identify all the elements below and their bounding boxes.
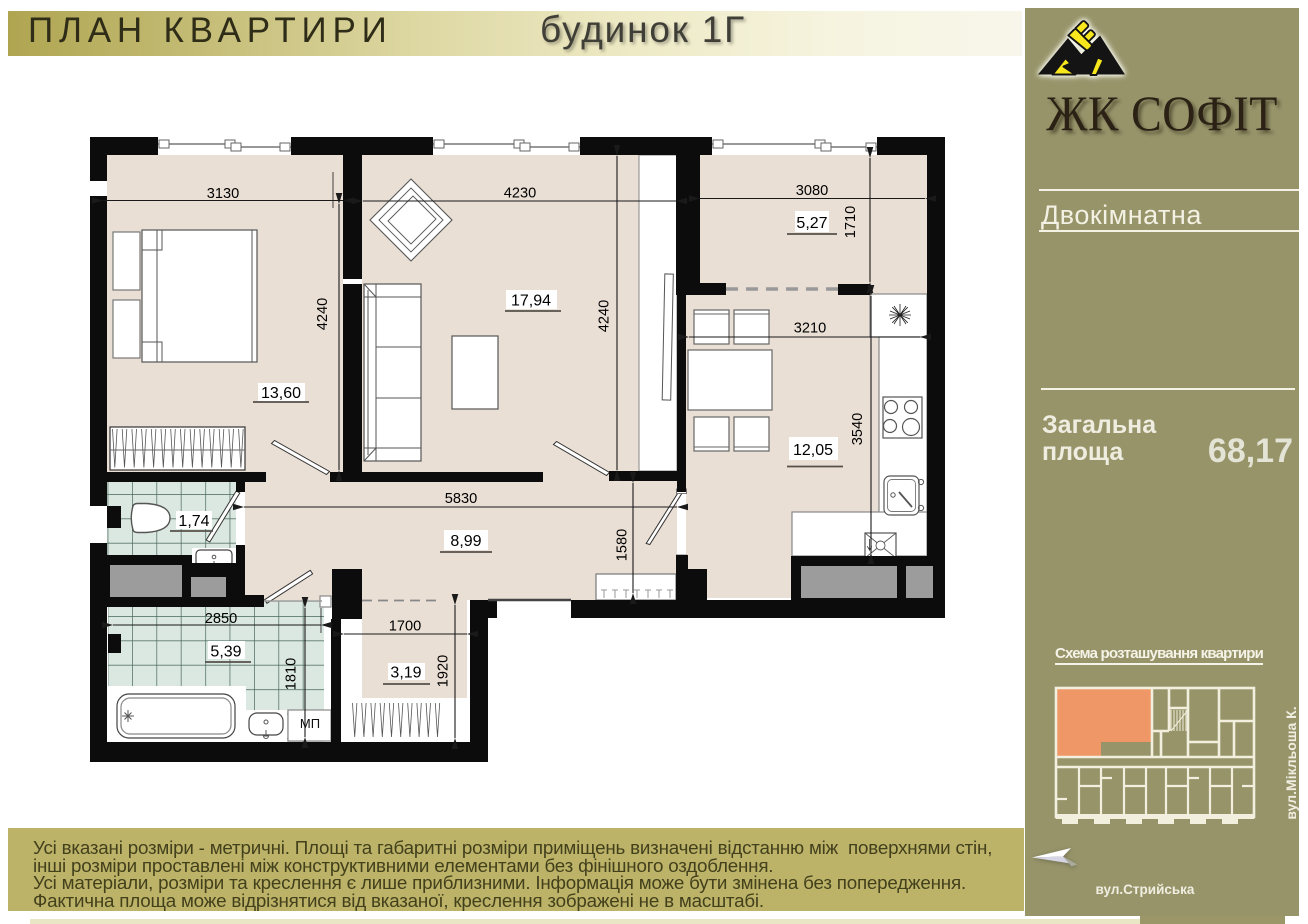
svg-text:3210: 3210: [794, 321, 826, 337]
svg-text:3130: 3130: [207, 186, 239, 202]
svg-text:1700: 1700: [389, 619, 421, 635]
svg-text:5,27: 5,27: [796, 215, 827, 232]
svg-text:1810: 1810: [284, 658, 300, 690]
svg-text:5,39: 5,39: [210, 644, 241, 661]
svg-text:5830: 5830: [445, 491, 477, 507]
svg-text:1710: 1710: [843, 206, 859, 238]
svg-text:1920: 1920: [436, 655, 452, 687]
svg-text:2850: 2850: [205, 611, 237, 627]
svg-text:1580: 1580: [615, 529, 631, 561]
svg-text:МП: МП: [300, 716, 320, 731]
svg-text:4240: 4240: [315, 298, 331, 330]
svg-text:4230: 4230: [504, 186, 536, 202]
svg-text:17,94: 17,94: [511, 293, 551, 310]
svg-text:13,60: 13,60: [261, 385, 301, 402]
svg-text:3540: 3540: [850, 413, 866, 445]
svg-text:4240: 4240: [597, 300, 613, 332]
svg-text:3,19: 3,19: [390, 665, 421, 682]
svg-text:8,99: 8,99: [450, 533, 481, 550]
svg-text:1,74: 1,74: [178, 513, 209, 530]
svg-text:12,05: 12,05: [793, 442, 833, 459]
svg-text:3080: 3080: [796, 183, 828, 199]
